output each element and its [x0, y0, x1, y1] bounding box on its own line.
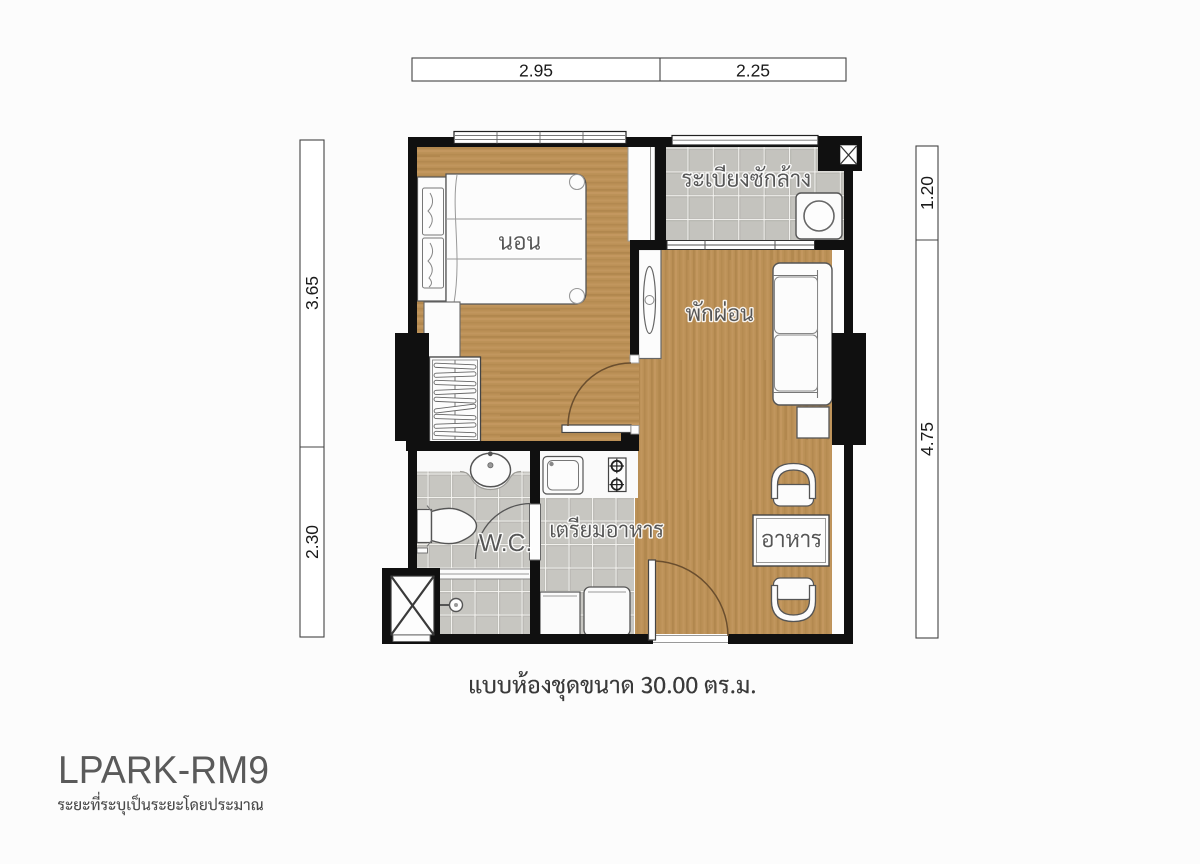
svg-text:1.20: 1.20: [917, 176, 937, 210]
svg-text:LPARK-RM9: LPARK-RM9: [58, 749, 269, 792]
svg-text:2.95: 2.95: [519, 61, 553, 81]
svg-text:2.25: 2.25: [736, 61, 770, 81]
svg-text:2.30: 2.30: [302, 525, 322, 559]
svg-text:3.65: 3.65: [302, 276, 322, 310]
svg-text:4.75: 4.75: [917, 422, 937, 456]
